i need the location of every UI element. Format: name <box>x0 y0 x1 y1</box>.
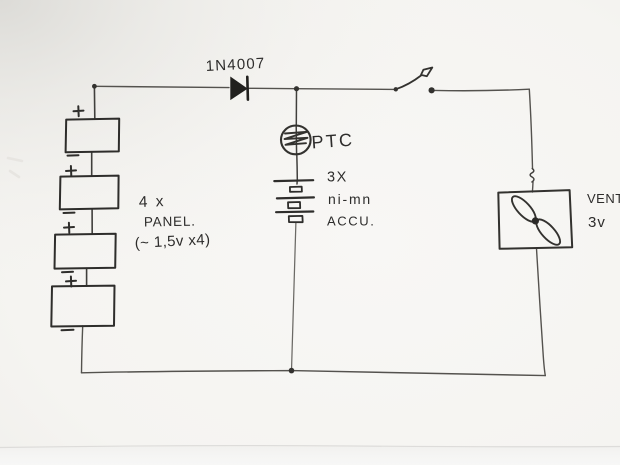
svg-text:4 x: 4 x <box>139 193 166 211</box>
svg-text:VENT.: VENT. <box>587 191 620 206</box>
svg-text:ACCU.: ACCU. <box>327 214 375 229</box>
svg-text:PANEL.: PANEL. <box>144 214 196 230</box>
svg-text:PTC: PTC <box>311 130 355 153</box>
svg-text:ni-mn: ni-mn <box>328 191 372 207</box>
svg-text:1N4007: 1N4007 <box>205 55 266 75</box>
svg-text:3X: 3X <box>327 170 348 186</box>
svg-text:3v: 3v <box>588 214 606 231</box>
